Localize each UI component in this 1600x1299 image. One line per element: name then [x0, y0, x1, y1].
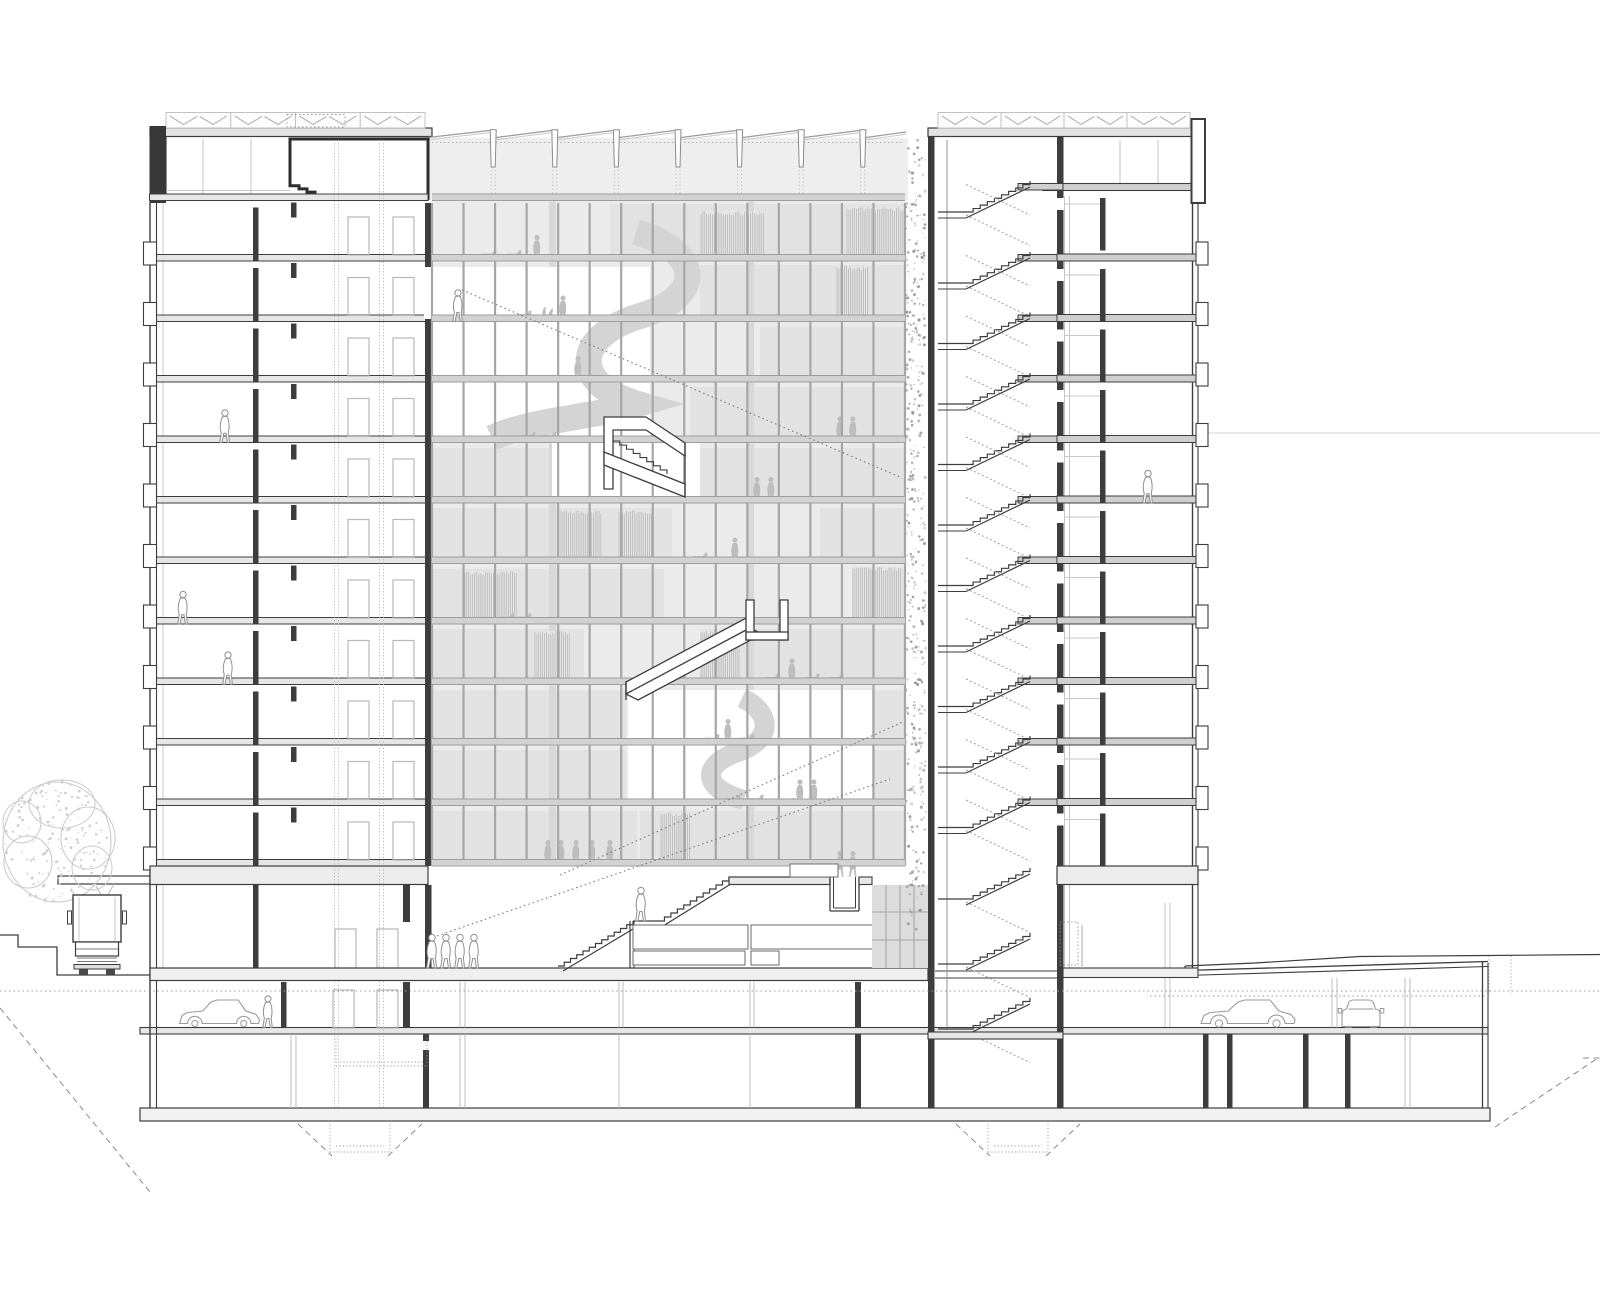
person: [469, 941, 479, 968]
parked-cars: [180, 1000, 1384, 1028]
stair-core: [905, 136, 1065, 1108]
drawing-canvas: [0, 0, 1600, 1299]
right-wing: [1057, 119, 1208, 978]
delivery-truck: [68, 895, 127, 975]
person: [263, 1002, 272, 1027]
car: [1201, 1000, 1295, 1027]
building-section-drawing: [0, 0, 1600, 1299]
central-atrium: [432, 194, 905, 877]
person: [427, 941, 437, 968]
person: [636, 894, 646, 921]
car: [1338, 1000, 1384, 1028]
green-wall: [905, 139, 927, 931]
person: [455, 941, 465, 968]
person: [441, 941, 451, 968]
sawtooth-skylight: [428, 130, 908, 201]
car: [180, 1000, 260, 1027]
